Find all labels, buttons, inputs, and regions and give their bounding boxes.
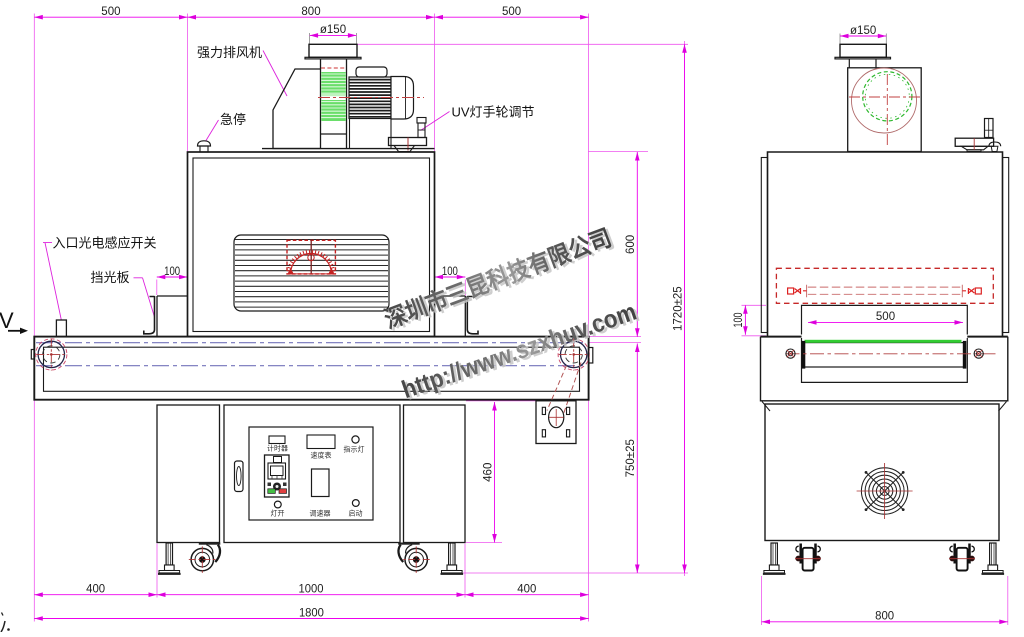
svg-text:750±25: 750±25 (625, 439, 637, 477)
svg-text:800: 800 (875, 611, 894, 623)
svg-text:指示灯: 指示灯 (344, 445, 365, 454)
svg-text:500: 500 (101, 6, 120, 18)
svg-text:急停: 急停 (220, 112, 246, 127)
svg-text:V: V (0, 308, 14, 333)
svg-text:ø150: ø150 (850, 25, 876, 37)
svg-text:启动: 启动 (349, 509, 363, 518)
svg-text:400: 400 (517, 584, 536, 596)
svg-text:1000: 1000 (299, 584, 324, 596)
svg-text:灯开: 灯开 (271, 509, 285, 518)
svg-text:100: 100 (164, 266, 180, 278)
svg-text:1800: 1800 (299, 607, 324, 619)
svg-text:600: 600 (625, 235, 637, 254)
svg-text:ø150: ø150 (320, 24, 346, 36)
svg-text:500: 500 (876, 311, 895, 323)
svg-text:100: 100 (733, 313, 745, 328)
svg-text:调速器: 调速器 (310, 509, 331, 518)
svg-text:800: 800 (301, 6, 320, 18)
svg-text:速度表: 速度表 (311, 451, 332, 460)
svg-text:1720±25: 1720±25 (672, 286, 684, 331)
svg-text:460: 460 (482, 463, 494, 482)
svg-text:500: 500 (502, 6, 521, 18)
svg-text:UV灯手轮调节: UV灯手轮调节 (452, 105, 535, 120)
svg-text:计时器: 计时器 (267, 444, 288, 453)
svg-text:强力排风机: 强力排风机 (197, 45, 262, 60)
svg-text:400: 400 (86, 584, 105, 596)
svg-text:100: 100 (442, 266, 458, 278)
svg-text:入口光电感应开关: 入口光电感应开关 (53, 236, 157, 251)
svg-text:挡光板: 挡光板 (91, 270, 130, 285)
